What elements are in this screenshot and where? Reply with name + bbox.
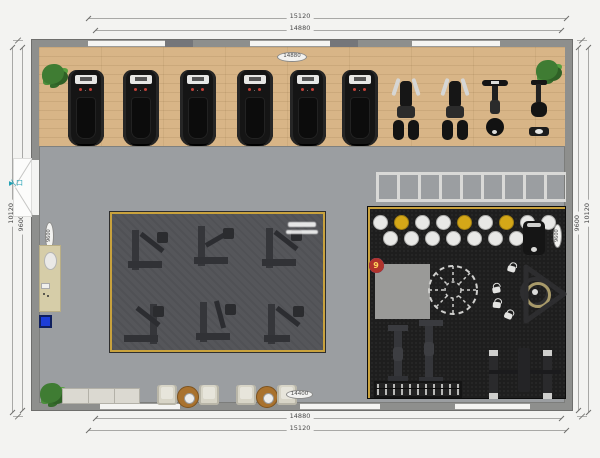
dim-label-top-inner: 14880 — [287, 25, 314, 32]
dim-line-left-outer — [12, 48, 13, 412]
exercise-ball — [404, 231, 419, 246]
exercise-ball — [425, 231, 440, 246]
wall-segment — [165, 40, 193, 47]
exercise-ball — [488, 231, 503, 246]
treadmill — [180, 70, 216, 146]
window-bottom — [300, 403, 380, 410]
strength-machine — [120, 302, 168, 348]
wall-segment — [330, 40, 358, 47]
dim-label-right-outer: 10120 — [584, 200, 591, 227]
dim-label-bottom-inner: 14880 — [287, 413, 314, 420]
counter-dots — [43, 293, 45, 295]
window-bottom — [455, 403, 530, 410]
agility-number-grid: 1 2 3 4 5 6 7 8 9 — [375, 264, 430, 319]
corner-mark — [577, 36, 587, 46]
treadmill — [123, 70, 159, 146]
blue-mat — [39, 315, 52, 328]
kettlebell — [507, 261, 517, 273]
strength-machine — [124, 228, 172, 274]
agility-ladder — [376, 172, 566, 202]
upright-bike — [528, 80, 550, 136]
door-opening — [32, 160, 39, 215]
exercise-ball — [457, 215, 472, 230]
entrance-arrow-icon: ▶ — [9, 181, 14, 187]
rope-circle — [425, 262, 481, 318]
exercise-ball — [467, 231, 482, 246]
window-top — [88, 40, 165, 47]
spin-bike — [482, 78, 508, 136]
exercise-ball — [509, 231, 524, 246]
dim-line-right-outer — [588, 48, 589, 412]
treadmill — [237, 70, 273, 146]
corner-mark — [13, 412, 23, 422]
treadmill — [342, 70, 378, 146]
dim-line-bottom-inner — [95, 418, 562, 419]
treadmill — [290, 70, 326, 146]
strength-machine — [190, 224, 238, 270]
bench-sofa — [62, 388, 140, 404]
lounge-chair — [236, 385, 256, 405]
counter-item — [41, 283, 50, 289]
kettlebell — [491, 282, 501, 293]
exercise-ball — [478, 215, 493, 230]
corner-mark — [13, 36, 23, 46]
dim-label-bottom-outer: 15120 — [287, 425, 314, 432]
seated-elliptical — [440, 76, 470, 140]
exercise-ball — [373, 215, 388, 230]
barbell-bench-set — [489, 348, 561, 400]
window-top — [412, 40, 500, 47]
round-table — [177, 386, 199, 408]
exercise-ball — [383, 231, 398, 246]
lounge-chair — [157, 385, 177, 405]
lounge-chair — [199, 385, 219, 405]
dim-label-right-inner: 9600 — [574, 212, 581, 235]
dim-label-top-outer: 15120 — [287, 13, 314, 20]
exercise-ball — [415, 215, 430, 230]
zone-watermark — [288, 222, 316, 227]
corner-mark — [577, 412, 587, 422]
bench-machine — [388, 325, 408, 383]
exercise-ball — [499, 215, 514, 230]
treadmill — [68, 70, 104, 146]
kettlebell — [492, 298, 501, 309]
dumbbell-rack — [374, 381, 462, 398]
dim-line-top-outer — [88, 18, 567, 19]
exercise-ball — [436, 215, 451, 230]
gym-floor-plan: 15120 14880 14880 15120 10120 9600 9600 … — [0, 0, 600, 458]
bench-machine — [419, 320, 443, 384]
zone-watermark — [286, 230, 318, 234]
functional-zone: 1 2 3 4 5 6 7 8 9 — [368, 207, 565, 398]
window-top — [250, 40, 330, 47]
strength-machine — [260, 302, 308, 348]
dim-bubble-bottom: 14400 — [286, 390, 313, 399]
entrance-label: 入口 ▶ — [9, 180, 23, 187]
dim-bubble-top: 14880 — [277, 52, 307, 62]
cable-frame — [522, 260, 568, 328]
dim-line-top-inner — [95, 30, 562, 31]
kettlebell — [503, 308, 514, 320]
strength-machine — [192, 300, 240, 346]
exercise-ball — [446, 231, 461, 246]
strength-zone — [110, 212, 325, 352]
dim-bubble-right: 9600 — [553, 224, 562, 248]
seated-elliptical — [391, 76, 421, 140]
dim-line-bottom-outer — [88, 430, 567, 431]
washbasin — [44, 252, 57, 270]
exercise-ball — [394, 215, 409, 230]
round-table — [256, 386, 278, 408]
rower-machine — [523, 221, 545, 255]
